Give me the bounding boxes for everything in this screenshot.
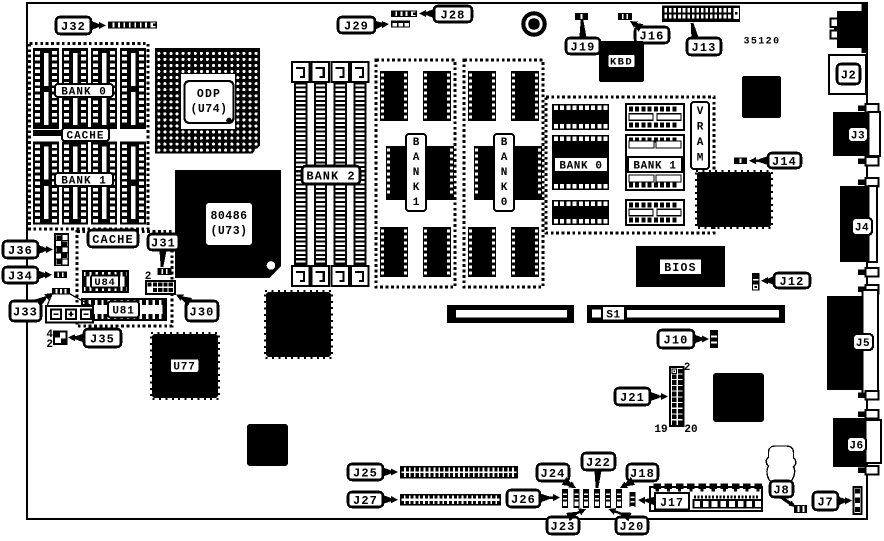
svg-text:BANK 0: BANK 0 xyxy=(559,161,602,173)
svg-text:2: 2 xyxy=(46,339,53,351)
svg-text:J31: J31 xyxy=(151,236,176,250)
svg-text:J2: J2 xyxy=(841,68,857,82)
svg-text:M: M xyxy=(697,153,704,165)
svg-text:19: 19 xyxy=(654,424,667,436)
svg-text:BANK 2: BANK 2 xyxy=(306,169,355,183)
svg-text:CACHE: CACHE xyxy=(66,130,104,142)
svg-text:J8: J8 xyxy=(773,483,789,497)
svg-text:BANK 1: BANK 1 xyxy=(61,175,107,187)
svg-text:J23: J23 xyxy=(551,520,576,534)
svg-text:ODP: ODP xyxy=(197,88,221,101)
svg-text:J33: J33 xyxy=(13,305,38,319)
svg-text:U81: U81 xyxy=(112,306,134,318)
svg-text:0: 0 xyxy=(501,197,508,209)
svg-text:J4: J4 xyxy=(855,222,869,234)
svg-text:J5: J5 xyxy=(856,338,870,350)
svg-text:J3: J3 xyxy=(851,130,865,142)
svg-text:J27: J27 xyxy=(353,494,378,508)
svg-text:R: R xyxy=(697,122,704,134)
svg-text:J12: J12 xyxy=(780,275,805,289)
svg-text:BANK 1: BANK 1 xyxy=(633,161,676,173)
svg-text:J21: J21 xyxy=(620,391,645,405)
svg-text:J22: J22 xyxy=(586,456,611,470)
svg-text:CACHE: CACHE xyxy=(92,233,134,247)
svg-text:A: A xyxy=(501,152,508,164)
svg-text:J25: J25 xyxy=(353,466,378,480)
svg-text:20: 20 xyxy=(684,424,697,436)
svg-text:2: 2 xyxy=(145,271,152,283)
svg-text:J36: J36 xyxy=(8,244,33,258)
svg-text:U84: U84 xyxy=(94,277,115,289)
svg-text:B: B xyxy=(501,137,508,149)
svg-text:J35: J35 xyxy=(90,332,115,346)
svg-text:80486: 80486 xyxy=(210,210,247,223)
svg-text:J30: J30 xyxy=(190,305,215,319)
svg-text:N: N xyxy=(413,167,420,179)
svg-text:J16: J16 xyxy=(640,29,665,43)
svg-text:J32: J32 xyxy=(61,20,86,34)
svg-text:J10: J10 xyxy=(664,333,689,347)
svg-text:V: V xyxy=(697,106,704,118)
svg-text:S1: S1 xyxy=(606,310,620,322)
svg-text:(U74): (U74) xyxy=(190,103,227,116)
svg-text:J18: J18 xyxy=(630,467,655,481)
svg-text:U77: U77 xyxy=(173,362,195,374)
svg-text:35120: 35120 xyxy=(743,37,780,48)
svg-text:J29: J29 xyxy=(344,19,369,33)
svg-text:K: K xyxy=(501,182,508,194)
svg-text:2: 2 xyxy=(684,362,691,374)
svg-text:A: A xyxy=(697,137,704,149)
svg-text:J7: J7 xyxy=(817,495,833,509)
svg-text:J20: J20 xyxy=(620,520,645,534)
svg-text:BIOS: BIOS xyxy=(664,262,696,275)
svg-text:B: B xyxy=(413,137,420,149)
svg-text:1: 1 xyxy=(413,197,420,209)
svg-text:J13: J13 xyxy=(692,41,717,55)
svg-text:A: A xyxy=(413,152,420,164)
svg-text:N: N xyxy=(501,167,508,179)
svg-text:J14: J14 xyxy=(772,155,797,169)
svg-text:KBD: KBD xyxy=(610,57,633,69)
svg-text:(U73): (U73) xyxy=(210,225,247,238)
svg-text:J24: J24 xyxy=(541,467,566,481)
svg-text:J28: J28 xyxy=(441,8,466,22)
svg-text:J34: J34 xyxy=(8,269,33,283)
svg-text:K: K xyxy=(413,182,420,194)
svg-text:J17: J17 xyxy=(660,497,684,510)
svg-text:BANK 0: BANK 0 xyxy=(61,86,107,98)
svg-text:J26: J26 xyxy=(511,493,536,507)
svg-text:J6: J6 xyxy=(849,440,863,452)
svg-text:J19: J19 xyxy=(571,40,596,54)
